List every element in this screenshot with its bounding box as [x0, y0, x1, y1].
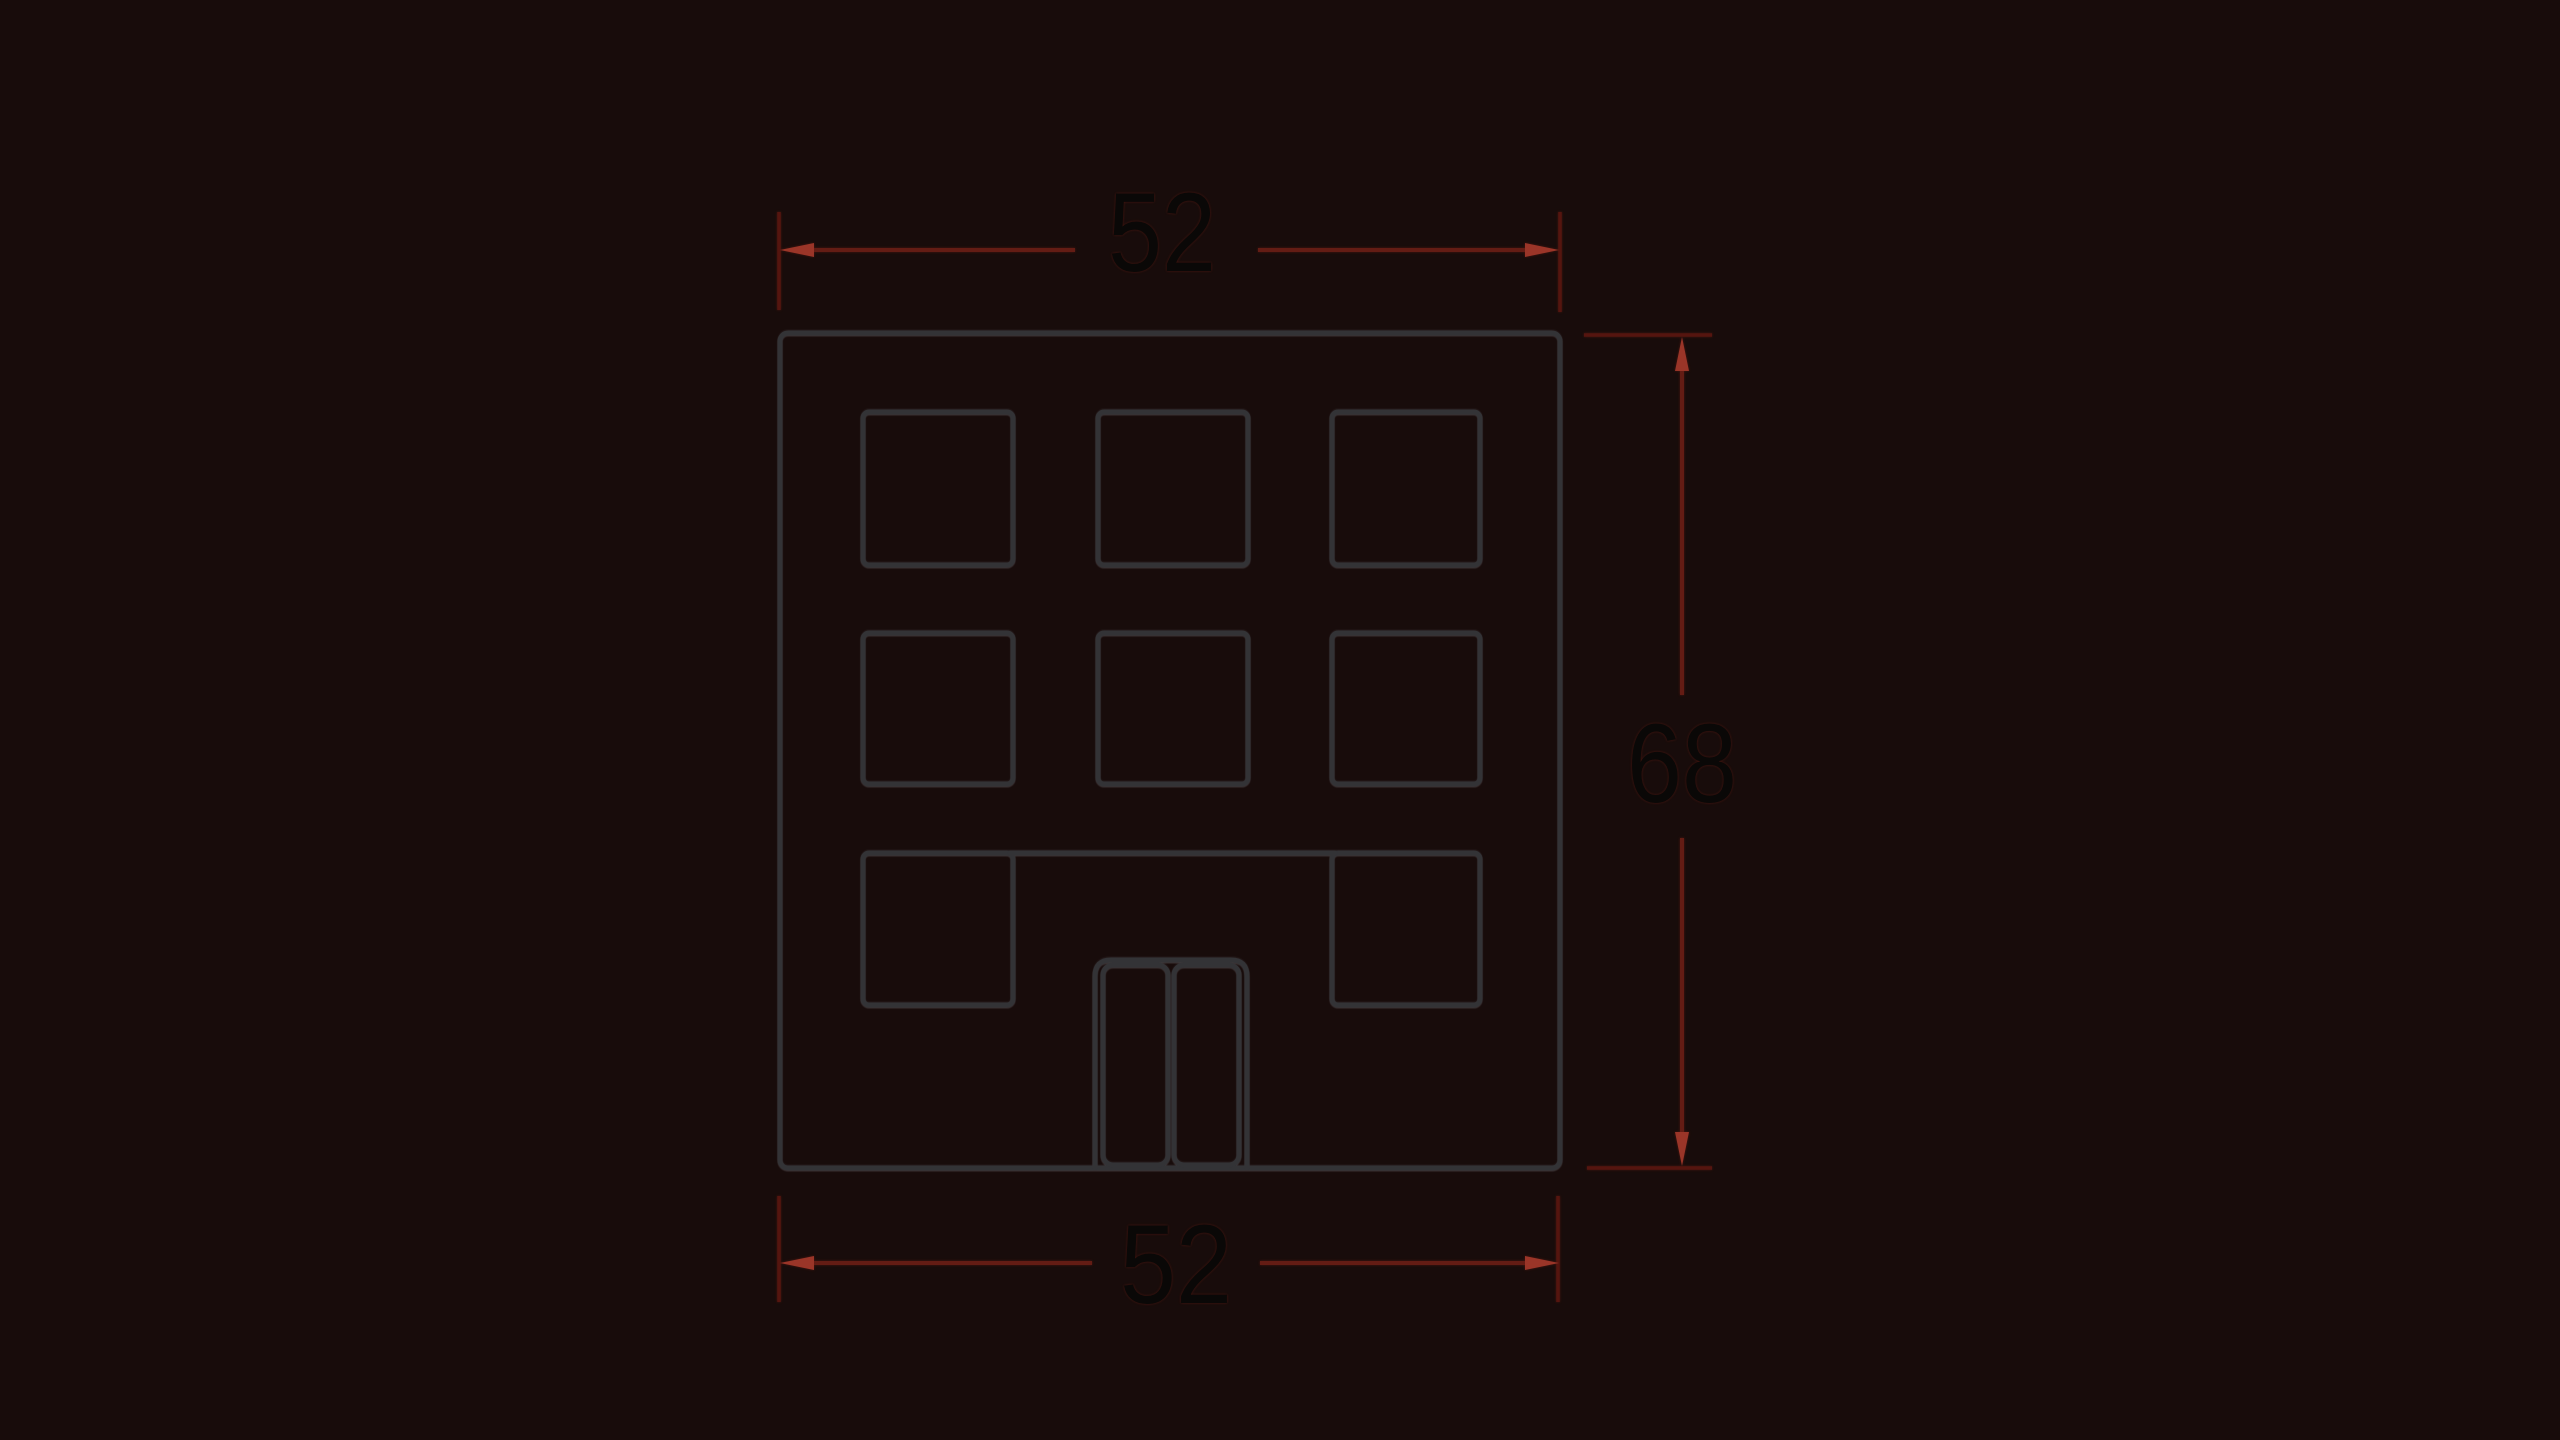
window-row2-col3	[1332, 633, 1480, 784]
dimension-top-label: 52	[1108, 170, 1216, 295]
window-row1-col3	[1332, 412, 1480, 565]
dimension-top-arrow-left-icon	[780, 243, 814, 257]
window-row3-col1	[863, 853, 1013, 1005]
dimension-bottom-arrow-right-icon	[1525, 1256, 1559, 1270]
technical-drawing-canvas: 52 68 52	[0, 0, 2560, 1440]
dimension-right-arrow-down-icon	[1675, 1132, 1689, 1166]
dimension-right-arrow-up-icon	[1675, 337, 1689, 371]
dimension-labels: 52 68 52	[1108, 170, 1737, 1327]
dimensions: 52 68 52	[779, 170, 1737, 1327]
dimension-bottom-arrow-left-icon	[780, 1256, 814, 1270]
door-leaf-right	[1174, 965, 1239, 1165]
window-row1-col1	[863, 412, 1013, 565]
door-leaf-left	[1103, 965, 1168, 1165]
dimension-right-label: 68	[1627, 701, 1737, 826]
window-row3-col3	[1332, 853, 1480, 1005]
dimension-top-arrow-right-icon	[1525, 243, 1559, 257]
window-row2-col1	[863, 633, 1013, 784]
dimension-bottom-label: 52	[1120, 1202, 1232, 1327]
door-outline	[1095, 960, 1247, 1168]
window-row1-col2	[1098, 412, 1248, 565]
window-row2-col2	[1098, 633, 1248, 784]
building	[780, 333, 1560, 1168]
